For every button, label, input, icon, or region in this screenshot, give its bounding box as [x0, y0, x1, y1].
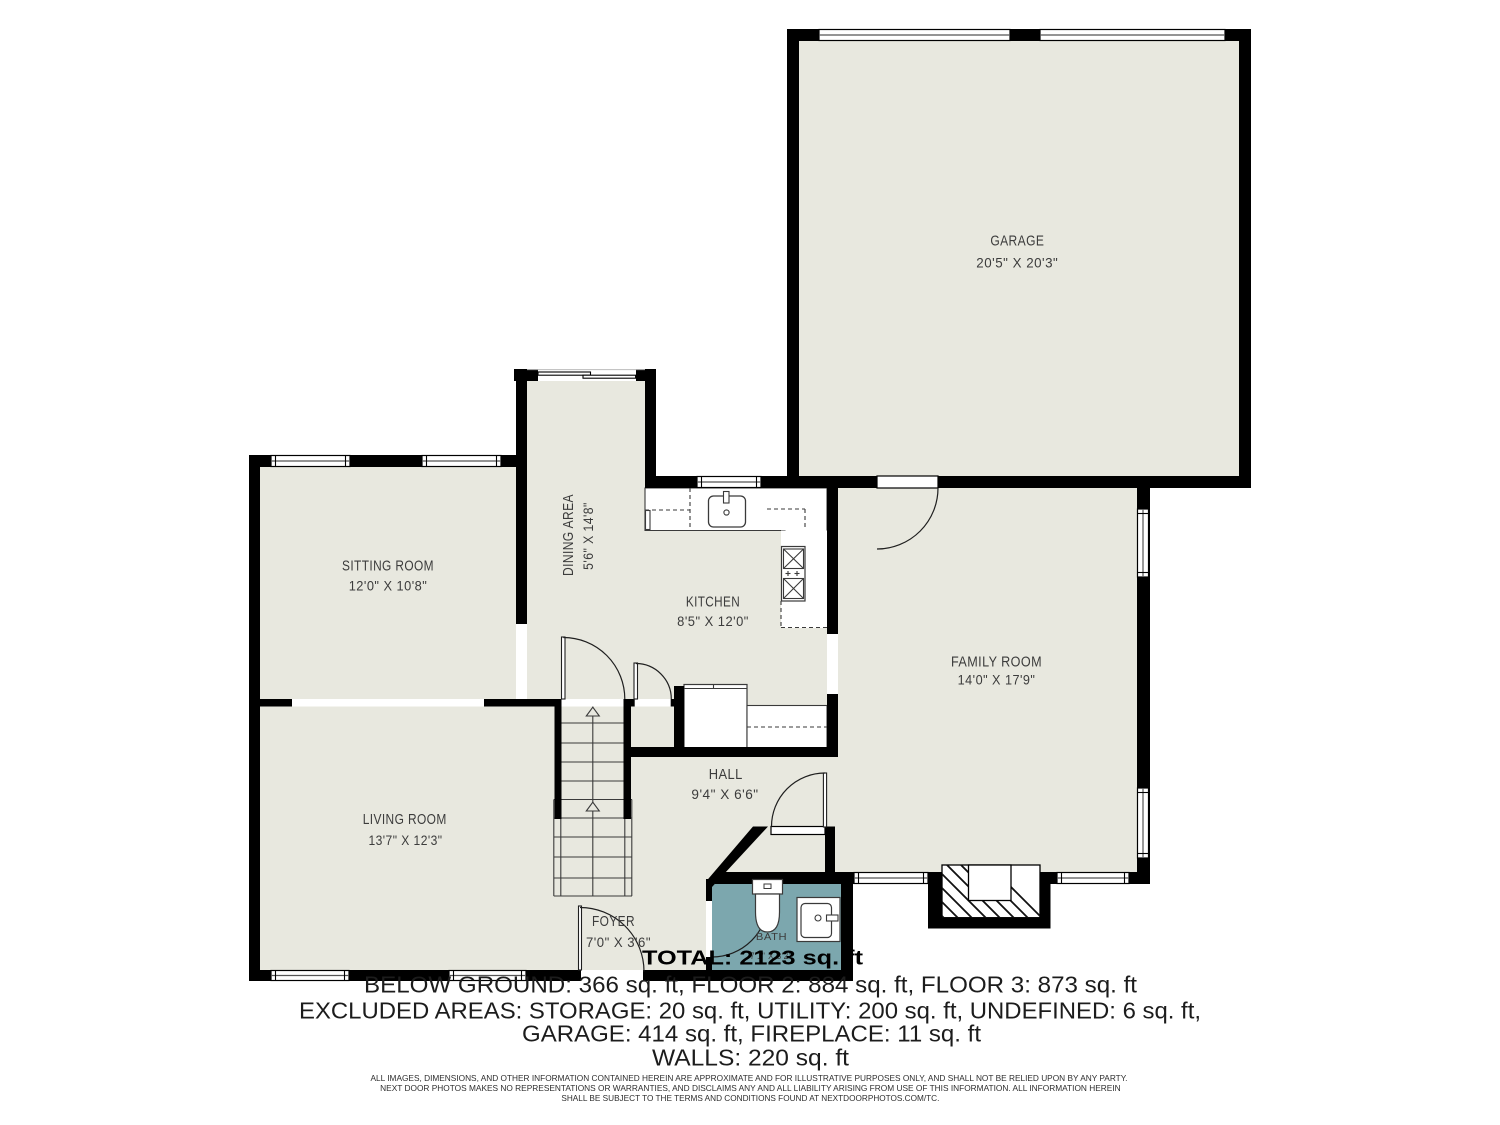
svg-text:5'6" X 14'8": 5'6" X 14'8" [581, 502, 597, 570]
svg-text:DINING AREA: DINING AREA [560, 494, 577, 576]
svg-text:KITCHEN: KITCHEN [686, 593, 740, 610]
svg-text:LIVING ROOM: LIVING ROOM [363, 811, 447, 828]
svg-text:NEXT DOOR PHOTOS MAKES NO REPR: NEXT DOOR PHOTOS MAKES NO REPRESENTATION… [380, 1083, 1121, 1093]
svg-text:12'0" X 10'8": 12'0" X 10'8" [349, 578, 428, 594]
svg-text:FAMILY ROOM: FAMILY ROOM [951, 653, 1042, 670]
svg-text:BELOW GROUND: 366 sq. ft, FLOO: BELOW GROUND: 366 sq. ft, FLOOR 2: 884 s… [364, 972, 1138, 998]
svg-text:14'0" X 17'9": 14'0" X 17'9" [958, 672, 1036, 688]
svg-text:TOTAL: 2123 sq. ft: TOTAL: 2123 sq. ft [642, 947, 863, 970]
svg-text:HALL: HALL [709, 766, 743, 783]
svg-text:SITTING ROOM: SITTING ROOM [342, 557, 434, 574]
svg-text:FOYER: FOYER [592, 913, 635, 930]
svg-text:8'5" X 12'0": 8'5" X 12'0" [677, 614, 749, 630]
svg-text:20'5" X 20'3": 20'5" X 20'3" [976, 255, 1058, 271]
svg-text:GARAGE: 414 sq. ft, FIREPLACE:: GARAGE: 414 sq. ft, FIREPLACE: 11 sq. ft [522, 1021, 982, 1047]
svg-text:GARAGE: GARAGE [990, 232, 1044, 249]
svg-text:WALLS: 220 sq. ft: WALLS: 220 sq. ft [652, 1045, 850, 1071]
svg-text:SHALL BE SUBJECT TO THE TERMS: SHALL BE SUBJECT TO THE TERMS AND CONDIT… [561, 1093, 939, 1103]
svg-text:13'7" X 12'3": 13'7" X 12'3" [368, 833, 442, 849]
svg-text:BATH: BATH [756, 930, 787, 942]
svg-text:ALL IMAGES, DIMENSIONS, AND OT: ALL IMAGES, DIMENSIONS, AND OTHER INFORM… [371, 1073, 1128, 1083]
svg-text:9'4" X 6'6": 9'4" X 6'6" [691, 787, 758, 803]
